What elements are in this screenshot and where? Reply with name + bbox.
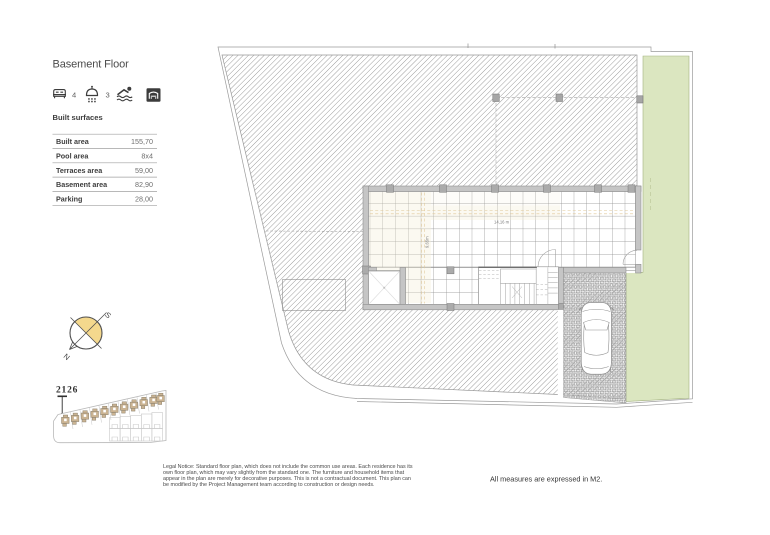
svg-text:Built surfaces: Built surfaces bbox=[53, 113, 103, 122]
svg-text:155,70: 155,70 bbox=[131, 137, 153, 146]
svg-text:9,65m: 9,65m bbox=[425, 236, 430, 248]
svg-text:Terraces area: Terraces area bbox=[56, 166, 103, 175]
svg-text:S: S bbox=[103, 310, 113, 320]
svg-text:3: 3 bbox=[106, 90, 110, 99]
svg-text:82,90: 82,90 bbox=[135, 180, 153, 189]
svg-text:4: 4 bbox=[72, 90, 76, 99]
svg-text:28,00: 28,00 bbox=[135, 194, 153, 203]
svg-text:2126: 2126 bbox=[56, 386, 78, 396]
svg-text:Basement area: Basement area bbox=[56, 180, 108, 189]
svg-text:be modified by the Project Man: be modified by the Project Management te… bbox=[163, 482, 375, 488]
svg-text:Basement Floor: Basement Floor bbox=[53, 59, 130, 71]
svg-text:Built area: Built area bbox=[56, 137, 90, 146]
svg-text:59,00: 59,00 bbox=[135, 166, 153, 175]
svg-text:14,16 m: 14,16 m bbox=[494, 220, 510, 225]
svg-text:N: N bbox=[62, 352, 72, 362]
svg-text:8x4: 8x4 bbox=[141, 152, 153, 161]
svg-text:Parking: Parking bbox=[56, 194, 82, 203]
svg-text:All measures are expressed in: All measures are expressed in M2. bbox=[490, 475, 602, 484]
svg-text:Pool area: Pool area bbox=[56, 152, 89, 161]
